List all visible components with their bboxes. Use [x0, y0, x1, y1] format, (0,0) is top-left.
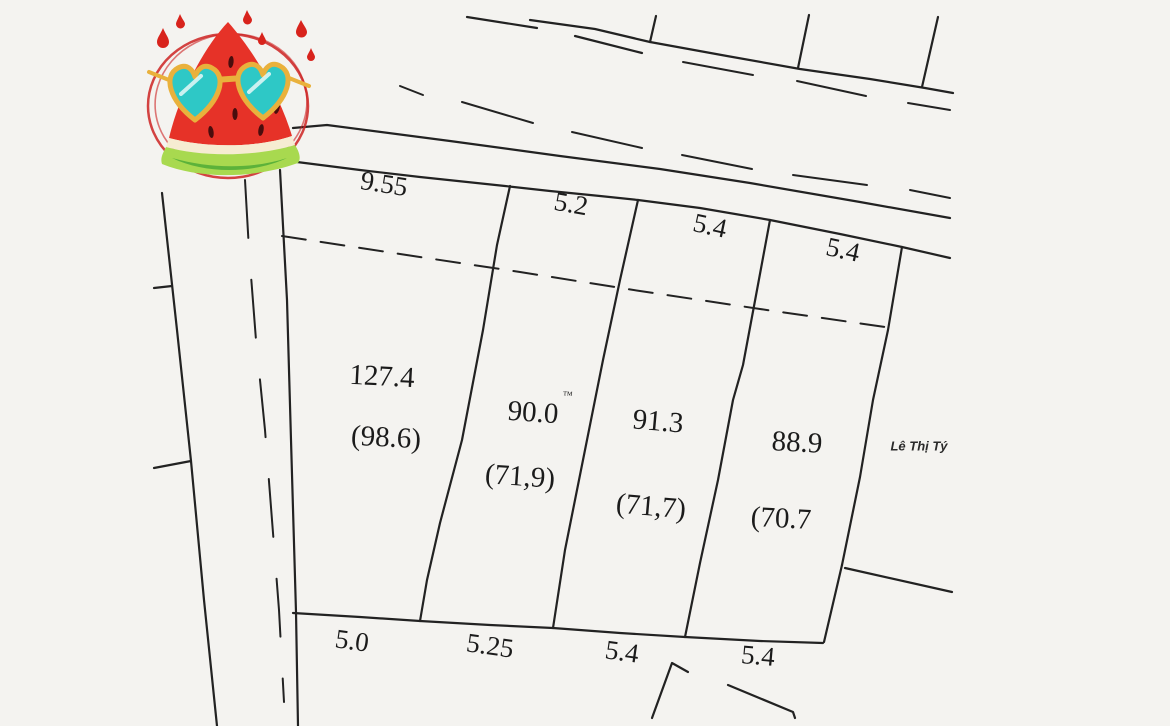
top-road-boundary-tick-3: [922, 17, 938, 87]
parcel-2-area-alt-label: (71,9): [484, 460, 556, 494]
neighbor-mark-left: [652, 663, 688, 718]
parcel-1-bottom-frontage-label: 5.0: [333, 625, 370, 656]
parcel-3-area-label: 91.3: [631, 405, 684, 438]
top-road-boundary-tick-1: [650, 16, 656, 42]
parcel-2-top-frontage-label: 5.2: [552, 188, 590, 220]
parcel-3-top-frontage-label: 5.4: [691, 209, 730, 242]
parcel-2-area-superscript: ™: [562, 391, 571, 402]
parcel-3-bottom-frontage-label: 5.4: [603, 636, 640, 667]
parcel-4-area-label: 88.9: [771, 427, 823, 459]
top-road-boundary-tick-2: [798, 15, 809, 68]
left-road-centerline-dashed: [245, 180, 284, 702]
parcel-3-area-alt-label: (71,7): [615, 490, 687, 525]
parcel-2-area-label: 90.0: [507, 397, 560, 429]
top-road-edge-fragment-1: [467, 17, 537, 28]
left-road-east-edge-line: [280, 170, 298, 726]
parcel-map-drawing: [0, 0, 1170, 726]
parcel-1-area-alt-label: (98.6): [350, 422, 421, 455]
parcel-1-area-label: 127.4: [349, 361, 416, 393]
parcel-1-top-frontage-label: 9.55: [359, 167, 410, 201]
front-road-dashed-lane-line: [400, 86, 950, 198]
left-road-tick-lower: [154, 461, 191, 468]
parcel-divider-3-4: [685, 220, 770, 637]
left-road-west-edge-line: [162, 193, 217, 726]
survey-drawing-page: 9.55 5.2 5.4 5.4 127.4 (98.6) 90.0 ™ (71…: [0, 0, 1170, 726]
top-road-north-edge-line: [530, 20, 953, 93]
parcel-divider-2-3: [553, 200, 638, 628]
neighbor-mark-right: [728, 685, 795, 718]
neighbor-owner-label: Lê Thị Tý: [890, 440, 947, 453]
planning-setback-dashed-line: [282, 236, 885, 327]
parcel-4-bottom-frontage-label: 5.4: [740, 641, 776, 671]
parcel-4-area-alt-label: (70.7: [750, 503, 812, 535]
parcel-2-bottom-frontage-label: 5.25: [465, 629, 516, 662]
parcel-4-southeast-jog: [824, 565, 842, 642]
left-road-tick-upper: [154, 286, 172, 288]
parcel-4-top-frontage-label: 5.4: [824, 233, 863, 266]
watermelon-sticker-icon: [147, 10, 315, 181]
parcel-4-east-boundary: [842, 247, 902, 565]
neighbor-boundary-east-line: [845, 568, 952, 592]
parcel-divider-1-2: [420, 186, 510, 621]
